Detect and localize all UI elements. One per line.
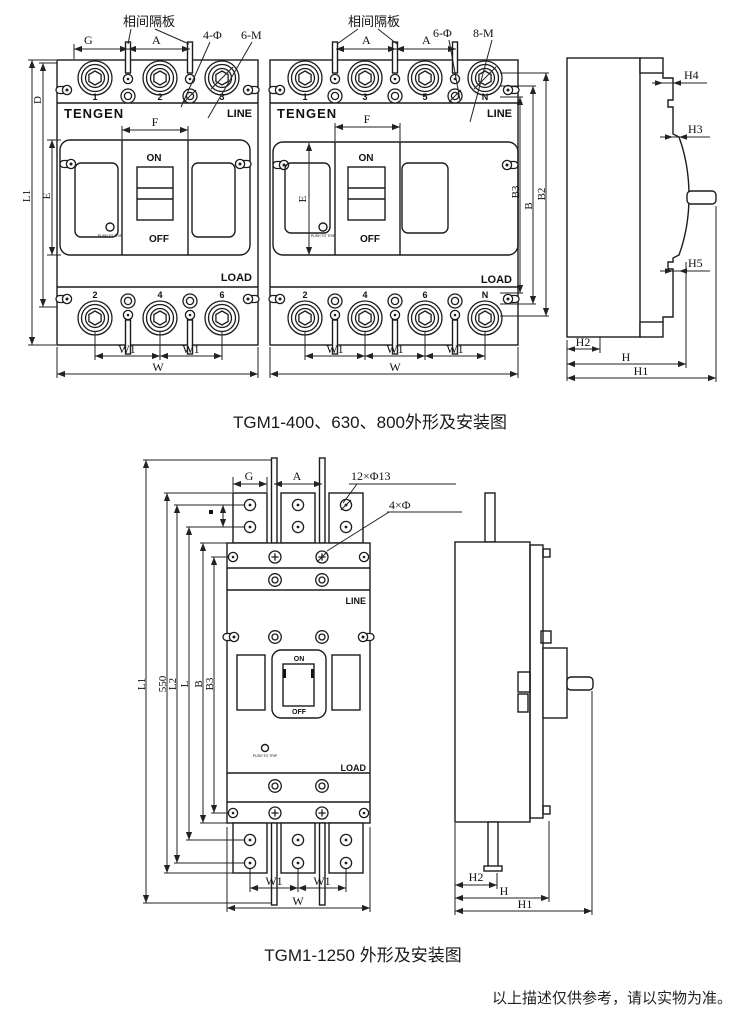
- dim-L1: L1: [136, 678, 148, 690]
- pole-number: 1: [92, 92, 97, 102]
- pole-number: 2: [302, 290, 307, 300]
- phase-separator: [272, 458, 278, 543]
- pole-number: N: [482, 92, 489, 102]
- busbar-tab: [488, 822, 498, 868]
- on-label: ON: [147, 153, 162, 164]
- breaker-handle: [567, 677, 593, 690]
- phase-separator: [320, 458, 326, 543]
- terminal: [78, 61, 112, 95]
- dim-H2: H2: [469, 870, 484, 884]
- phase-separator: [272, 823, 278, 905]
- pole-number: 6: [422, 290, 427, 300]
- dim-12xphi13: 12×Φ13: [351, 469, 391, 483]
- dim-H1: H1: [634, 364, 649, 378]
- dim-W1: W1: [326, 342, 343, 356]
- separator-label: 相间隔板: [348, 14, 400, 29]
- dim-H2: H2: [576, 335, 591, 349]
- dim-H: H: [500, 884, 509, 898]
- dim-W1: W1: [446, 342, 463, 356]
- dim-H4: H4: [684, 68, 699, 82]
- load-label: LOAD: [221, 272, 252, 284]
- separator-label: 相间隔板: [123, 14, 175, 29]
- phase-separator: [320, 823, 326, 905]
- dim-E: E: [297, 195, 309, 202]
- dim-W: W: [389, 360, 401, 374]
- dim-W: W: [292, 894, 304, 908]
- dim-W1: W1: [182, 342, 199, 356]
- dim-L2: L2: [167, 678, 179, 690]
- fig1-front-3pole: 1 2 3 TENGEN LINE ON OFF PUSH TO TRIP LO…: [21, 14, 262, 378]
- on-label: ON: [359, 153, 374, 164]
- brand-logo: TENGEN: [277, 106, 337, 121]
- dim-6phi: 6-Φ: [433, 26, 452, 40]
- line-label: LINE: [227, 108, 252, 120]
- trip-label: PUSH TO TRIP: [253, 754, 278, 758]
- dim-L: L: [179, 680, 191, 687]
- figure1-caption: TGM1-400、630、800外形及安装图: [233, 413, 507, 432]
- dim-A: A: [293, 469, 302, 483]
- technical-drawing: 1 2 3 TENGEN LINE ON OFF PUSH TO TRIP LO…: [0, 0, 750, 1018]
- dim-A: A: [362, 33, 371, 47]
- breaker-handle: [687, 191, 716, 204]
- drawing-page: 1 2 3 TENGEN LINE ON OFF PUSH TO TRIP LO…: [0, 0, 750, 1018]
- dim-W1: W1: [313, 874, 330, 888]
- dim-4xphi: 4×Φ: [389, 498, 411, 512]
- fig2-front-view: LINE ON OFF PUSH TO TRIP LOAD: [136, 458, 462, 912]
- dim-H1: H1: [518, 897, 533, 911]
- dim-8m: 8-M: [473, 26, 494, 40]
- dim-G: G: [84, 33, 93, 47]
- load-label: LOAD: [341, 763, 367, 773]
- dim-A: A: [152, 33, 161, 47]
- dim-E: E: [41, 192, 53, 199]
- figure2: LINE ON OFF PUSH TO TRIP LOAD: [136, 458, 593, 965]
- dim-W1: W1: [118, 342, 135, 356]
- load-label: LOAD: [481, 274, 512, 286]
- dim-H: H: [622, 350, 631, 364]
- trip-label: PUSH TO TRIP: [98, 234, 123, 238]
- trip-label: PUSH TO TRIP: [311, 234, 336, 238]
- phase-separator: [188, 42, 193, 73]
- phase-separator: [126, 42, 131, 73]
- pole-number: 2: [92, 290, 97, 300]
- phase-separator: [453, 42, 458, 73]
- pole-number: 5: [422, 92, 427, 102]
- pole-number: 4: [157, 290, 162, 300]
- dim-6m: 6-M: [241, 28, 262, 42]
- pole-number: 6: [219, 290, 224, 300]
- dim-B: B: [523, 202, 535, 209]
- pole-number: 1: [302, 92, 307, 102]
- dim-B2: B2: [536, 188, 548, 201]
- busbar-tab: [485, 493, 495, 542]
- dim-B3: B3: [204, 677, 216, 690]
- figure2-caption: TGM1-1250 外形及安装图: [264, 946, 461, 965]
- dim-F: F: [364, 112, 371, 126]
- off-label: OFF: [360, 234, 380, 245]
- dim-W1: W1: [386, 342, 403, 356]
- phase-separator: [333, 42, 338, 73]
- dim-H3: H3: [688, 122, 703, 136]
- dim-G: G: [245, 469, 254, 483]
- dim-F: F: [152, 115, 159, 129]
- pole-number: 3: [362, 92, 367, 102]
- phase-separator: [393, 42, 398, 73]
- dim-W: W: [152, 360, 164, 374]
- line-label: LINE: [345, 596, 366, 606]
- pole-number: N: [482, 290, 489, 300]
- off-label: OFF: [292, 709, 307, 716]
- dim-L1: L1: [21, 190, 33, 202]
- dim-H5: H5: [688, 256, 703, 270]
- on-label: ON: [294, 656, 305, 663]
- off-label: OFF: [149, 234, 169, 245]
- fig1-side-view: H4 H3 H5 H2 H H1: [567, 58, 716, 382]
- dim-D: D: [32, 96, 44, 104]
- terminal: [143, 61, 177, 95]
- dim-B3: B3: [510, 185, 522, 198]
- dim-4phi: 4-Φ: [203, 28, 222, 42]
- brand-logo: TENGEN: [64, 106, 124, 121]
- dim-A: A: [422, 33, 431, 47]
- pole-number: 4: [362, 290, 367, 300]
- pole-number: 2: [157, 92, 162, 102]
- dim-W1: W1: [265, 874, 282, 888]
- fig2-side-view: H2 H H1: [455, 493, 593, 915]
- line-label: LINE: [487, 108, 512, 120]
- fig1-front-4pole: 1 3 5 N TENGEN LINE ON OFF PUSH TO TRIP …: [269, 14, 549, 378]
- figure1: 1 2 3 TENGEN LINE ON OFF PUSH TO TRIP LO…: [21, 14, 716, 432]
- disclaimer-note: 以上描述仅供参考，请以实物为准。: [492, 990, 732, 1007]
